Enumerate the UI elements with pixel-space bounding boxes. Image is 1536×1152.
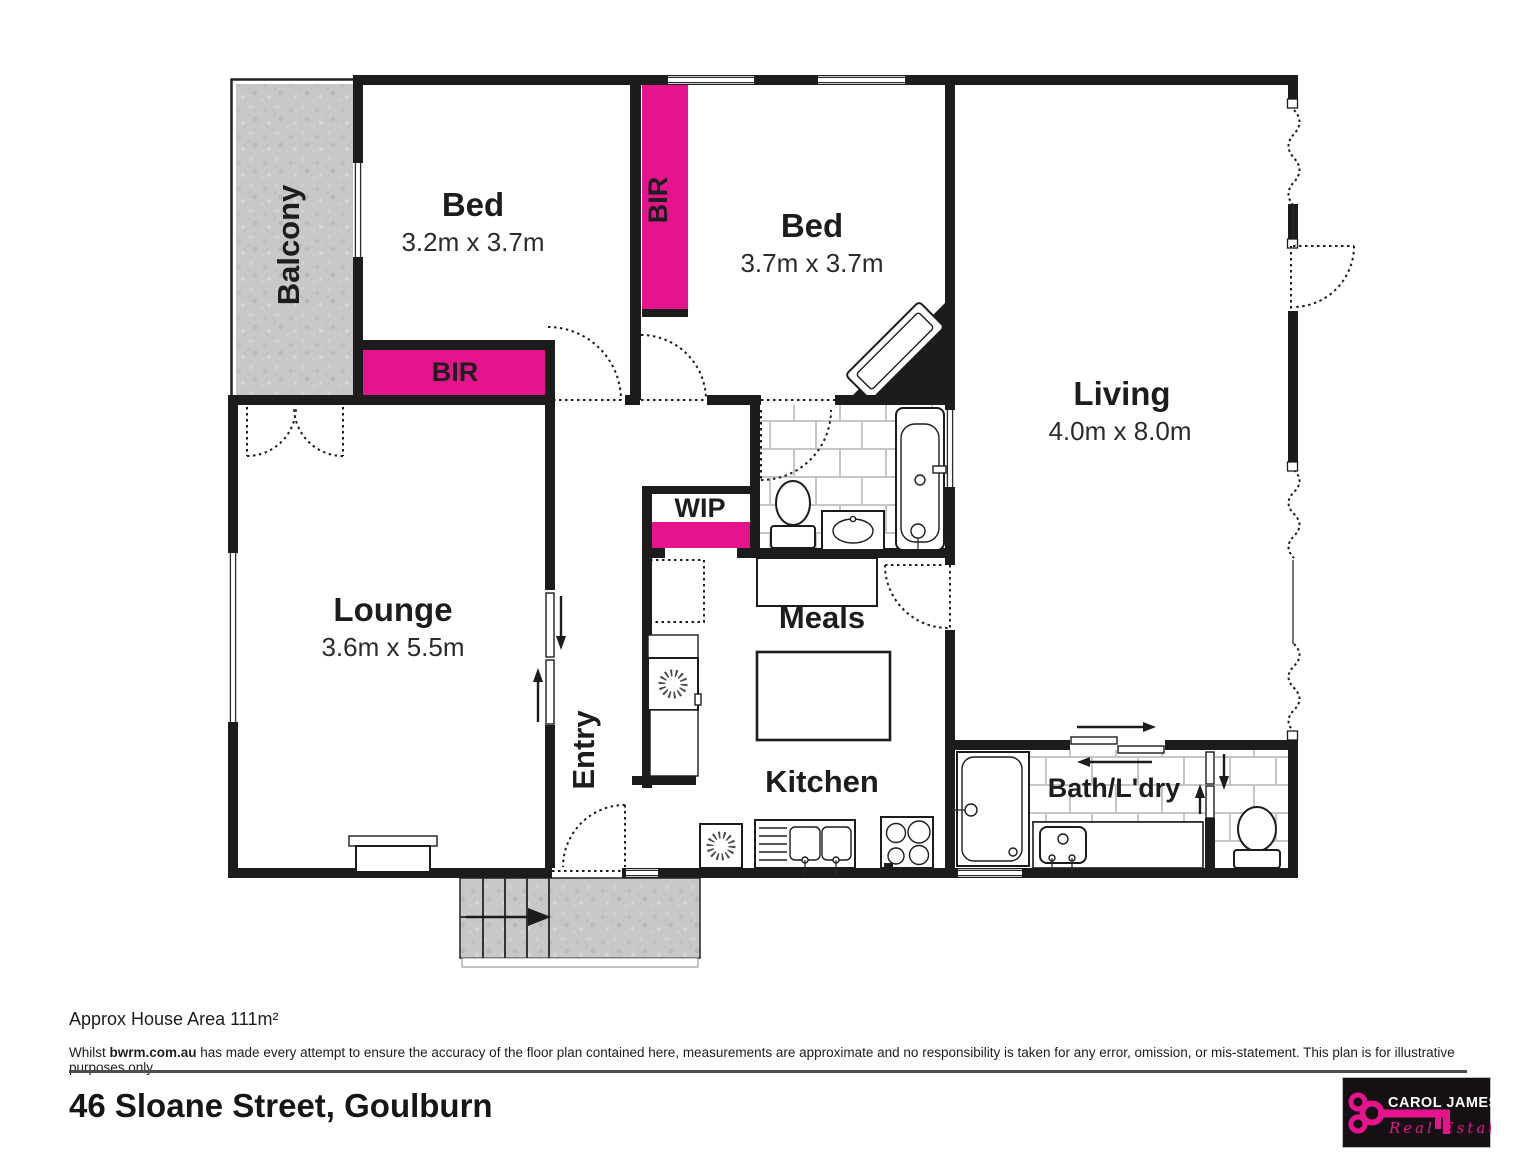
stove-cooktop: [881, 817, 933, 868]
lounge-label: Lounge: [333, 591, 452, 628]
vanity-basin: [822, 511, 884, 550]
bed2-label: Bed: [781, 207, 843, 244]
bathtub: [896, 408, 946, 550]
kitchen-label: Kitchen: [765, 764, 879, 799]
toilet: [771, 481, 815, 548]
living-label: Living: [1073, 375, 1170, 412]
entry-label: Entry: [566, 710, 601, 790]
disclaimer-prefix: Whilst: [69, 1045, 110, 1060]
lounge-entry-sliding-door: [533, 590, 566, 725]
floorplan-page: Balcony Bed 3.2m x 3.7m BIR Bed 3.7m x 3…: [0, 0, 1536, 1152]
lounge-fireplace: [349, 836, 437, 872]
porch-floor: [460, 878, 700, 967]
living-dims: 4.0m x 8.0m: [1048, 416, 1191, 446]
bir-bed2-label: BIR: [643, 177, 673, 224]
oven: [648, 658, 701, 710]
bed1-dims: 3.2m x 3.7m: [401, 227, 544, 257]
logo-brand-name: CAROL JAMES: [1388, 1095, 1491, 1111]
bed2-dims: 3.7m x 3.7m: [740, 248, 883, 278]
kitchen-sink: [755, 820, 855, 875]
shower: [950, 752, 1029, 866]
balcony-french-doors: [247, 407, 343, 456]
meals-label: Meals: [779, 600, 865, 635]
linen-cupboard: [757, 558, 877, 606]
bed1-label: Bed: [442, 186, 504, 223]
balcony-label: Balcony: [271, 184, 306, 305]
bed1-door: [548, 327, 623, 400]
floorplan-drawing: Balcony Bed 3.2m x 3.7m BIR Bed 3.7m x 3…: [0, 0, 1536, 1000]
property-address: 46 Sloane Street, Goulburn: [69, 1087, 493, 1125]
island-bench: [757, 652, 890, 740]
front-door: [552, 805, 625, 871]
bed2-door: [641, 335, 706, 400]
wip-label: WIP: [675, 493, 726, 523]
agency-logo: CAROL JAMES Real Estate: [1342, 1077, 1491, 1148]
lounge-dims: 3.6m x 5.5m: [321, 632, 464, 662]
bath-laundry-label: Bath/L'dry: [1048, 773, 1180, 803]
house-area-note: Approx House Area 111m²: [69, 1009, 278, 1030]
bed2-corner-fireplace: [843, 293, 955, 405]
living-external-door: [1291, 246, 1354, 311]
logo-brand-tagline: Real Estate: [1388, 1119, 1491, 1137]
disclaimer-brand: bwrm.com.au: [110, 1045, 197, 1060]
bir-bed1-label: BIR: [432, 357, 479, 387]
wc-toilet: [1234, 807, 1280, 868]
built-in-robes: [363, 85, 750, 548]
meals-door: [885, 565, 950, 630]
wip-shelf: [652, 522, 750, 548]
laundry-tub: [1032, 822, 1203, 873]
footer-divider: [69, 1070, 1467, 1073]
dishwasher: [700, 824, 742, 868]
fridge-space: [644, 560, 704, 622]
